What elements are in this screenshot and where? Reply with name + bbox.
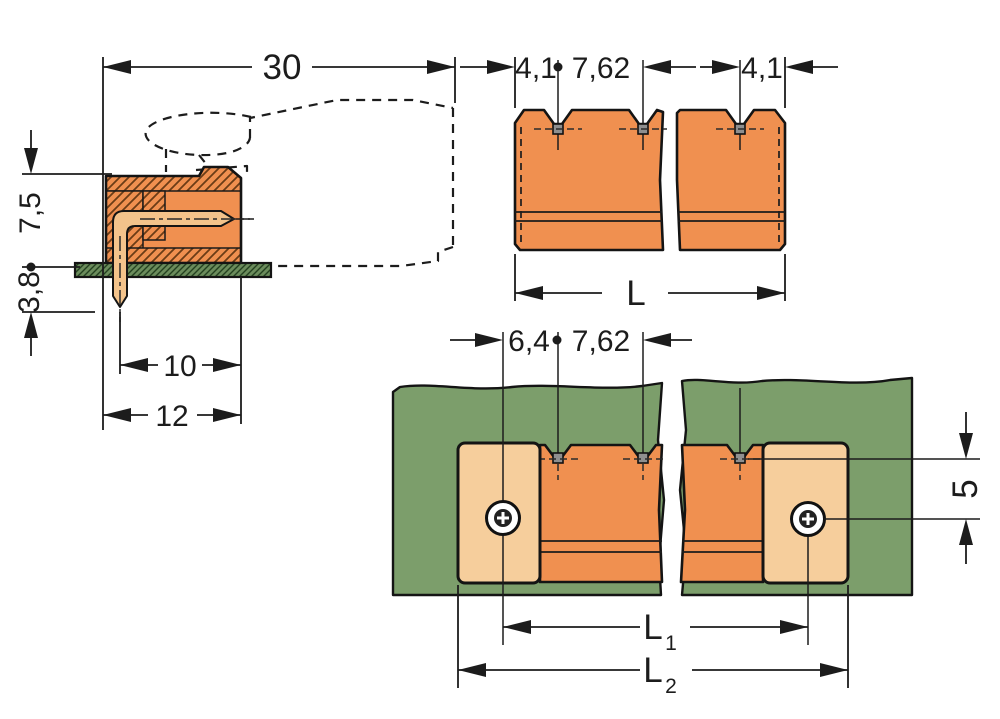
plug-bottom-outline [274,247,453,266]
arrowhead-right [780,620,808,634]
arrowhead-left [458,663,486,677]
pcb-side-hatch [75,263,271,277]
dim-dot [554,63,563,72]
arrowhead-left [120,358,148,372]
arrowhead-left [103,60,131,74]
dim-dot [553,336,562,345]
dim-label-30: 30 [263,48,302,87]
dim-label-12: 12 [155,400,188,433]
arrowhead-right [820,663,848,677]
dim-top-pitch-group: 4,1 7,62 4,1 [460,52,838,108]
arrowhead-up [959,519,973,545]
connector-dimension-drawing: 30 7,5 3,8 10 [0,0,1000,719]
dim-label-L2-base: L [643,651,662,690]
arrowhead-right [213,408,241,422]
dim-12-group: 12 [103,400,241,433]
arrowhead-left [103,408,131,422]
pin-square [638,453,648,463]
dim-label-10: 10 [163,350,196,383]
bottom-body-right-fill [681,445,763,582]
arrowhead-left [785,60,813,74]
screw-right [792,503,825,536]
plug-wire-loop [146,113,251,155]
top-body-right-segment [677,110,785,250]
arrowhead-right [757,286,785,300]
dim-label-3-8: 3,8 [13,271,46,313]
dim-label-4-1-left: 4,1 [515,52,557,85]
dim-label-4-1-right: 4,1 [741,52,783,85]
arrowhead-right [213,358,241,372]
side-body-top-wall-hatch [106,167,241,191]
arrowhead-down [24,148,38,174]
pin-square [553,453,563,463]
arrowhead-right [427,60,455,74]
arrowhead-right [475,333,503,347]
bottom-view: 6,4 7,62 5 L 1 [393,325,985,698]
arrowhead-left [515,286,543,300]
dim-L-group: L [515,254,785,313]
dim-label-7-62: 7,62 [572,325,630,358]
dim-label-L: L [626,274,645,313]
dim-label-7-62: 7,62 [572,52,630,85]
arrowhead-right [487,60,515,74]
arrowhead-down [959,433,973,459]
dim-L1-group: L 1 [503,608,808,655]
bottom-body [540,445,763,582]
arrowhead-left [503,620,531,634]
top-view: 4,1 7,62 4,1 L [460,52,838,313]
side-view: 30 7,5 3,8 10 [13,48,455,433]
plug-top-outline [250,100,453,138]
dim-3-8-group: 3,8 [13,271,95,356]
arrowhead-left [643,333,671,347]
dim-label-7-5: 7,5 [14,192,47,234]
dim-label-L1-sub: 1 [665,632,677,655]
dim-bottom-pitch-group: 6,4 7,62 [450,325,692,358]
technical-drawing-page: 30 7,5 3,8 10 [0,0,1000,719]
pcb-side-section [75,263,271,277]
screw-left [487,502,520,535]
dim-label-6-4: 6,4 [508,325,550,358]
pin-square [735,453,745,463]
top-body-right-fill [677,110,785,250]
dim-label-L1-base: L [643,608,662,647]
dim-7-5-group: 7,5 [14,130,112,272]
arrowhead-left [643,60,671,74]
dim-label-L2-sub: 2 [665,675,677,698]
arrowhead-up [24,312,38,338]
arrowhead-right [712,60,740,74]
dim-label-5: 5 [946,479,985,498]
